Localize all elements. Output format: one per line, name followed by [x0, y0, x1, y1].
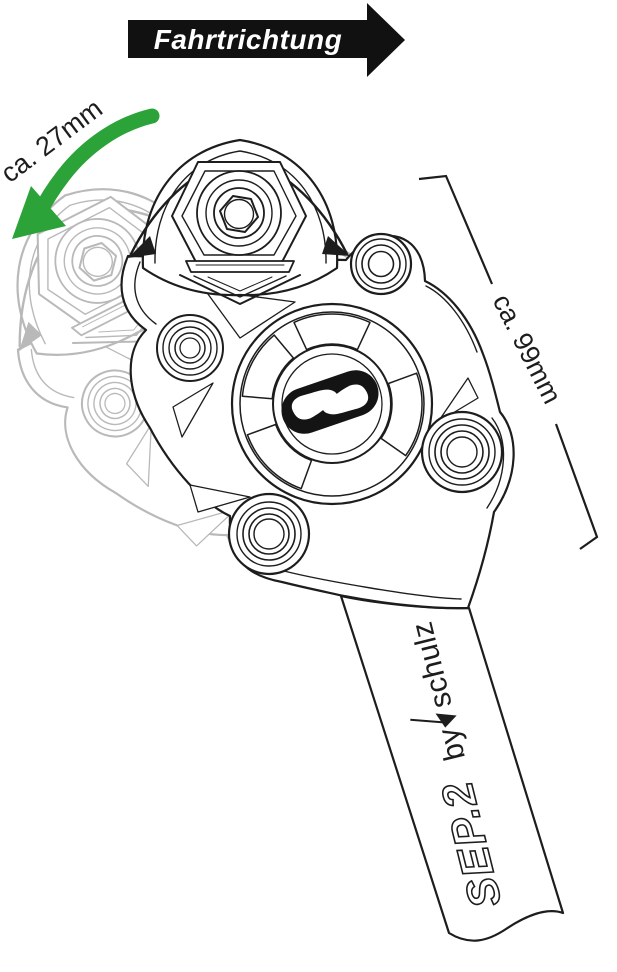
- direction-arrow-label: Fahrtrichtung: [154, 24, 343, 55]
- length-dimension-bracket: [419, 176, 492, 284]
- direction-arrow: Fahrtrichtung: [128, 3, 405, 77]
- diagram-canvas: SEP.2 by schulz Fahrtrichtung ca. 27mm c…: [0, 0, 617, 972]
- seatpost-tube: [341, 596, 563, 941]
- seatpost-head: [122, 140, 514, 608]
- technical-drawing-page: SEP.2 by schulz Fahrtrichtung ca. 27mm c…: [0, 0, 617, 972]
- length-dimension-bracket: [556, 424, 597, 549]
- length-annotation-label: ca. 99mm: [487, 289, 568, 408]
